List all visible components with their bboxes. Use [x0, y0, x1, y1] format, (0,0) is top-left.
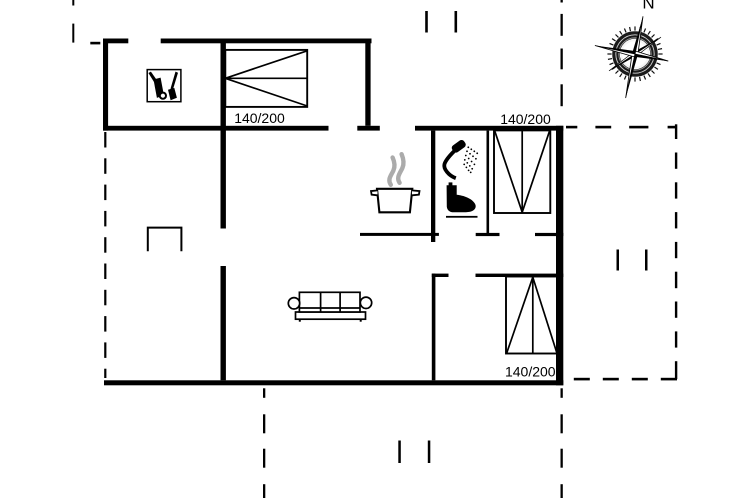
- svg-text:140/200: 140/200: [505, 364, 556, 380]
- svg-text:140/200: 140/200: [500, 111, 551, 127]
- svg-text:N: N: [642, 0, 654, 13]
- svg-text:140/200: 140/200: [234, 110, 285, 126]
